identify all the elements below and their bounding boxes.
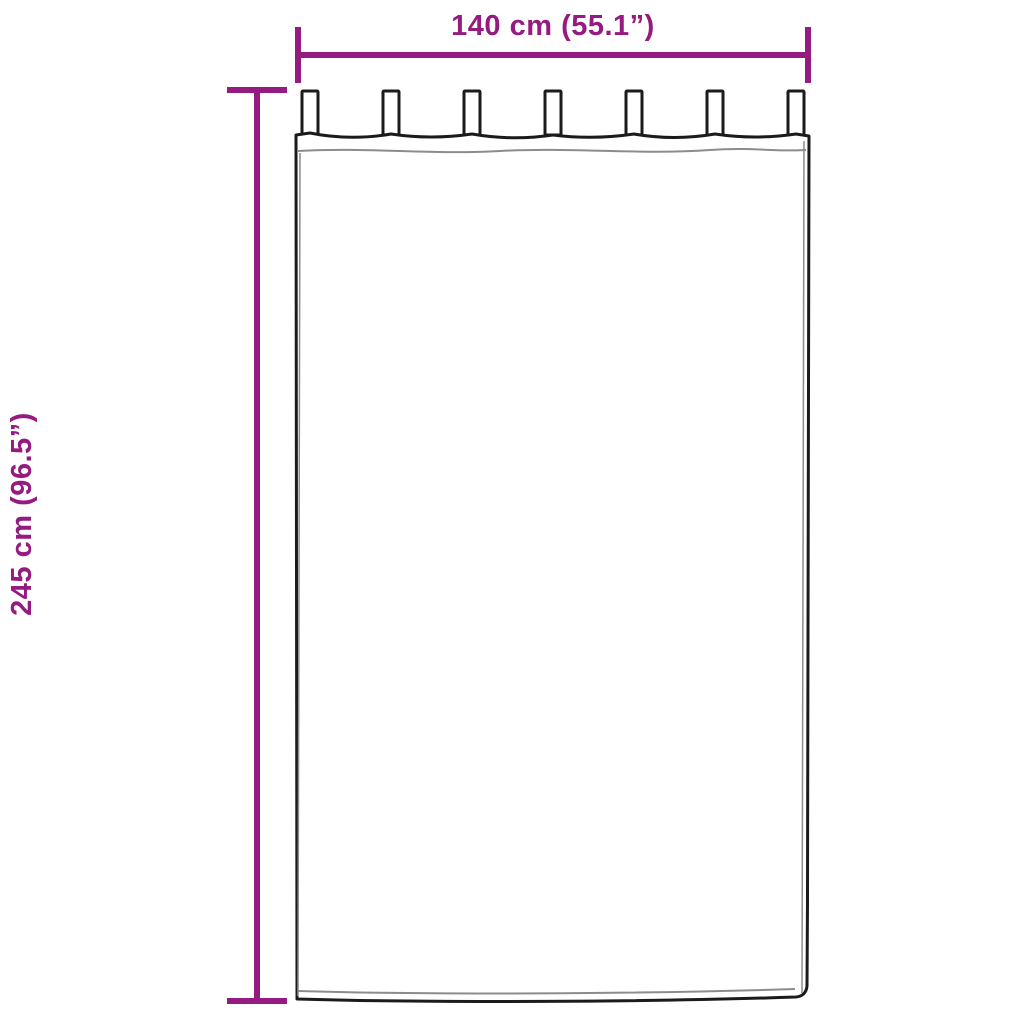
curtain-tabs bbox=[302, 91, 804, 135]
curtain-body bbox=[296, 133, 809, 1001]
curtain-tab bbox=[302, 91, 318, 135]
curtain-tab bbox=[545, 91, 561, 135]
dimension-diagram: 140 cm (55.1”) 245 cm (96.5”) bbox=[0, 0, 1024, 1024]
curtain-tab bbox=[383, 91, 399, 135]
curtain-tab bbox=[626, 91, 642, 135]
curtain-illustration bbox=[0, 0, 1024, 1024]
height-dimension-label: 245 cm (96.5”) bbox=[5, 314, 39, 714]
curtain-tab bbox=[464, 91, 480, 135]
width-dimension-label: 140 cm (55.1”) bbox=[298, 9, 808, 43]
curtain-tab bbox=[707, 91, 723, 135]
curtain-tab bbox=[788, 91, 804, 135]
